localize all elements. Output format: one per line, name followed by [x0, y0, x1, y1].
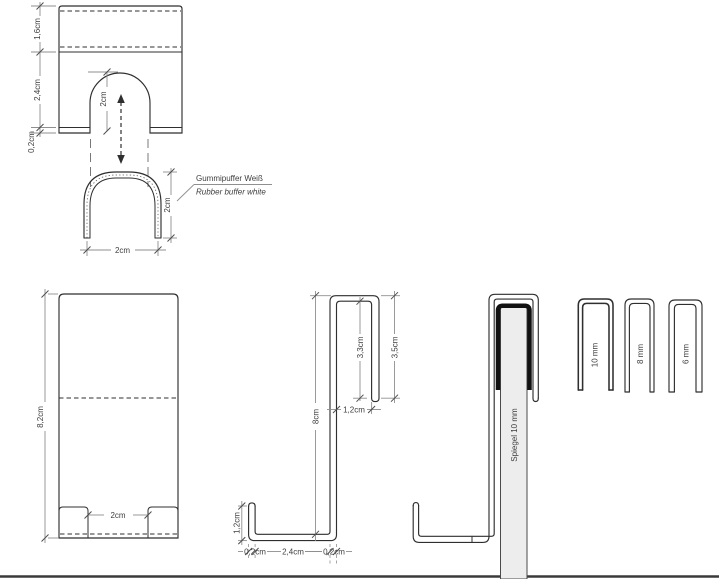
dim-label-hook-outer: 3,5cm [391, 336, 400, 358]
mirror-thickness-label: Spiegel 10 mm [510, 408, 519, 462]
front-elevation-drawing: 2cm 8,2cm [36, 289, 178, 543]
dim-label-lip-height: 1,2cm [233, 512, 242, 534]
hook-variant-10mm: 10 mm [578, 299, 613, 390]
profile-lip-end-cap [249, 503, 256, 506]
elevation-body-outline [59, 294, 178, 538]
dim-label-mid-height: 2,4cm [33, 79, 42, 101]
dim-label-top-height: 1,6cm [33, 18, 42, 40]
dim-label-base-width: 2,4cm [282, 548, 304, 557]
buffer-label-english: Rubber buffer white [196, 188, 266, 197]
hook-size-label: 8 mm [636, 344, 645, 364]
dim-label-buffer-height: 2cm [163, 197, 172, 212]
profile-surface-outline [249, 301, 372, 540]
dim-label-lip-height: 0,2cm [27, 131, 36, 153]
dim-label-thickness-right: 0,2cm [323, 548, 345, 557]
leader-line [177, 185, 194, 202]
dim-label-hook-inner: 3,3cm [356, 336, 365, 358]
right-foot-outline [148, 507, 178, 538]
hook-variant-6mm: 6 mm [669, 300, 702, 392]
buffer-label-german: Gummipuffer Weiß [196, 174, 263, 183]
hook-technical-drawing: 1,6cm 2,4cm 0,2cm 2cm 2cm [0, 0, 719, 579]
hook-size-label: 6 mm [682, 344, 691, 364]
arrow-down-icon [117, 155, 125, 164]
dim-label-hook-gap: 1,2cm [343, 406, 365, 415]
buffer-inner-outline [90, 178, 155, 238]
dim-label-buffer-width: 2cm [115, 246, 130, 255]
dim-label-total-height: 8,2cm [36, 406, 45, 428]
dim-label-foot-gap: 2cm [110, 511, 125, 520]
arrow-up-icon [117, 94, 125, 103]
front-view-body-outline [59, 6, 182, 133]
hook-variant-8mm: 8 mm [625, 299, 654, 392]
dim-label-arch-height: 2cm [99, 91, 108, 106]
mirror-section-drawing: Spiegel 10 mm [413, 294, 538, 579]
dim-label-profile-height: 8cm [312, 409, 321, 424]
left-foot-outline [59, 507, 88, 538]
buffer-outer-outline [84, 172, 161, 238]
dim-label-thickness-left: 0,2cm [244, 548, 266, 557]
technical-drawing-page: 1,6cm 2,4cm 0,2cm 2cm 2cm [0, 0, 719, 579]
mounted-hook-lip-cap [413, 503, 418, 506]
profile-leg-end-cap [372, 398, 379, 401]
side-profile-drawing: 8cm 3,3cm 3,5cm 1,2cm 1,2cm [233, 291, 401, 564]
hook-size-variants: 10 mm 8 mm 6 mm [578, 299, 702, 392]
front-view-drawing: 1,6cm 2,4cm 0,2cm 2cm [27, 2, 182, 187]
hook-size-label: 10 mm [591, 342, 600, 367]
rubber-buffer-drawing: 2cm 2cm Gummipuffer Weiß Rubber buffer w… [80, 168, 272, 256]
mounted-hook-leg-cap [533, 398, 538, 401]
